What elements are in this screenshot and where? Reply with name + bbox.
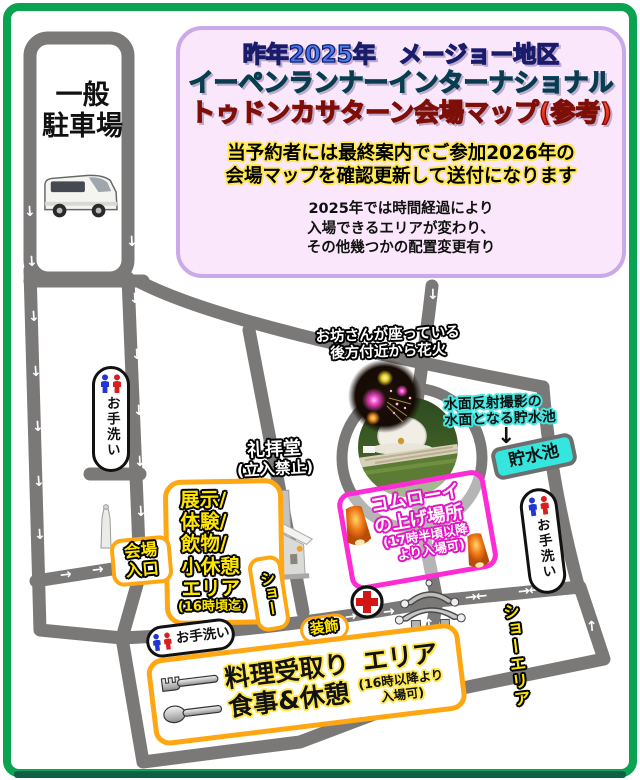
title-line2: イーペンランナーインターナショナル xyxy=(180,69,622,98)
venue-map: ↓↓↓↓↓↓↓↓↓↓↓↓↓↓→→→→←→←→→→←→←↑↑↑ xyxy=(0,0,640,780)
chapel-label: 礼拝堂 (立入禁止) xyxy=(221,437,328,481)
traffic-arrow: → xyxy=(59,567,71,582)
note-text: 2025年では時間経過により 入場できるエリアが変わり、 その他幾つかの配置変更… xyxy=(180,200,622,259)
toilet-people-icon xyxy=(99,374,123,394)
notice-line1: 当予約者には最終案内でご参加2026年の xyxy=(180,142,622,165)
title-line1: 昨年2025年 メージョー地区 xyxy=(180,42,622,68)
venue-entrance-box: 会場 入口 xyxy=(109,534,174,587)
traffic-arrow: ↑ xyxy=(585,620,597,635)
toilet-label: お手洗い xyxy=(103,396,119,458)
fireworks-photo xyxy=(347,358,423,434)
toilet-label: お手洗い xyxy=(532,517,555,580)
toilet-people-icon xyxy=(526,495,552,518)
parking-line2: 駐車場 xyxy=(25,111,140,142)
entrance-line2: 入口 xyxy=(125,560,160,582)
traffic-arrow: ↓ xyxy=(135,505,146,520)
traffic-arrow: ↓ xyxy=(26,255,38,270)
title-box: 昨年2025年 メージョー地区 イーペンランナーインターナショナル トゥドンカサ… xyxy=(176,26,626,278)
bottom-dark-strip xyxy=(14,771,626,778)
van-icon xyxy=(42,170,120,220)
traffic-arrow: ↓ xyxy=(28,310,40,325)
traffic-arrow: ↓ xyxy=(133,404,144,419)
show-lane-label: ショー xyxy=(257,570,281,617)
traffic-arrow: ↓ xyxy=(30,365,42,380)
toilet-sign-left: お手洗い xyxy=(92,366,130,472)
traffic-arrow: ↓ xyxy=(134,455,145,470)
parking-label: 一般 駐車場 xyxy=(25,80,140,142)
traffic-arrow: ↓ xyxy=(32,420,44,435)
notice-line2: 会場マップを確認更新して送付になります xyxy=(180,165,622,188)
traffic-arrow: ↓ xyxy=(131,348,142,363)
traffic-arrow: ↓ xyxy=(129,292,140,307)
first-aid-icon xyxy=(349,584,385,620)
fork-spoon-icon xyxy=(158,666,227,731)
toilet-people-icon xyxy=(150,631,174,653)
traffic-arrow: ↓ xyxy=(427,288,438,302)
exhibit-line2: 体験/ xyxy=(180,510,278,534)
title-line3: トゥドンカサターン会場マップ(参考) xyxy=(180,99,622,128)
traffic-arrow: ↓ xyxy=(24,205,36,220)
note-line2: 入場できるエリアが変わり、 xyxy=(180,220,622,240)
note-line1: 2025年では時間経過により xyxy=(180,200,622,220)
traffic-arrow: ↓ xyxy=(126,235,137,250)
parking-line1: 一般 xyxy=(25,80,140,111)
notice-text: 当予約者には最終案内でご参加2026年の 会場マップを確認更新して送付になります xyxy=(180,142,622,188)
note-line3: その他幾つかの配置変更有り xyxy=(180,239,622,259)
exhibit-line3: 飲物/ xyxy=(181,532,279,556)
pond-badge-label: 貯水池 xyxy=(507,442,561,472)
traffic-arrow: ↓ xyxy=(34,528,46,543)
traffic-arrow: → xyxy=(91,562,103,577)
fireworks-caption: お坊さんが座っている 後方付近から花火 xyxy=(297,324,478,364)
exhibit-line1: 展示/ xyxy=(180,488,278,512)
traffic-arrow: →← xyxy=(464,589,487,605)
toilet-label: お手洗い xyxy=(175,625,230,647)
traffic-arrow: ↓ xyxy=(33,475,45,490)
